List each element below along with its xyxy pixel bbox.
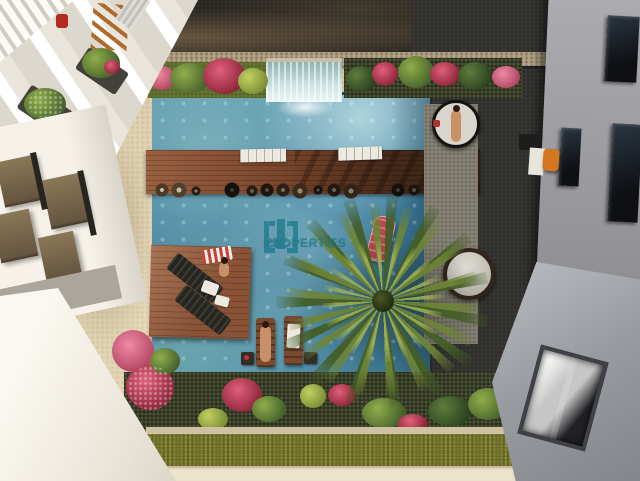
brand-name-line2: PROPERTIES [264,237,346,250]
orange-terrace-chair [542,148,559,171]
lawn-strip [146,434,530,467]
red-drink [244,355,249,360]
bar-towel-tray [240,149,286,163]
flower-dots [128,366,174,410]
palm-tree-crown [372,290,394,312]
balcony-red-flowers [104,60,120,74]
lime-plant [238,68,268,94]
render-canvas: CIC PROPERTIES [0,0,640,481]
sunbather-on-daybed [451,110,461,142]
brand-watermark: CIC PROPERTIES [264,213,384,261]
bar-towel-tray [338,146,382,161]
red-accessory [433,120,440,127]
building-window [604,15,639,83]
green-plant [252,396,286,422]
pink-flower-bush [492,66,520,88]
red-flower-bush [372,62,398,86]
green-plant [458,62,492,90]
cream-path [138,466,540,481]
building-window [558,128,581,187]
building-window [607,123,640,222]
red-flower-bush [430,62,460,86]
sunbather-on-lounger [260,326,271,362]
red-balcony-chair [56,14,68,28]
green-plant [428,396,472,426]
green-plant [398,56,434,88]
waterfall-splash-glow [276,96,334,118]
swimmer [219,262,229,277]
